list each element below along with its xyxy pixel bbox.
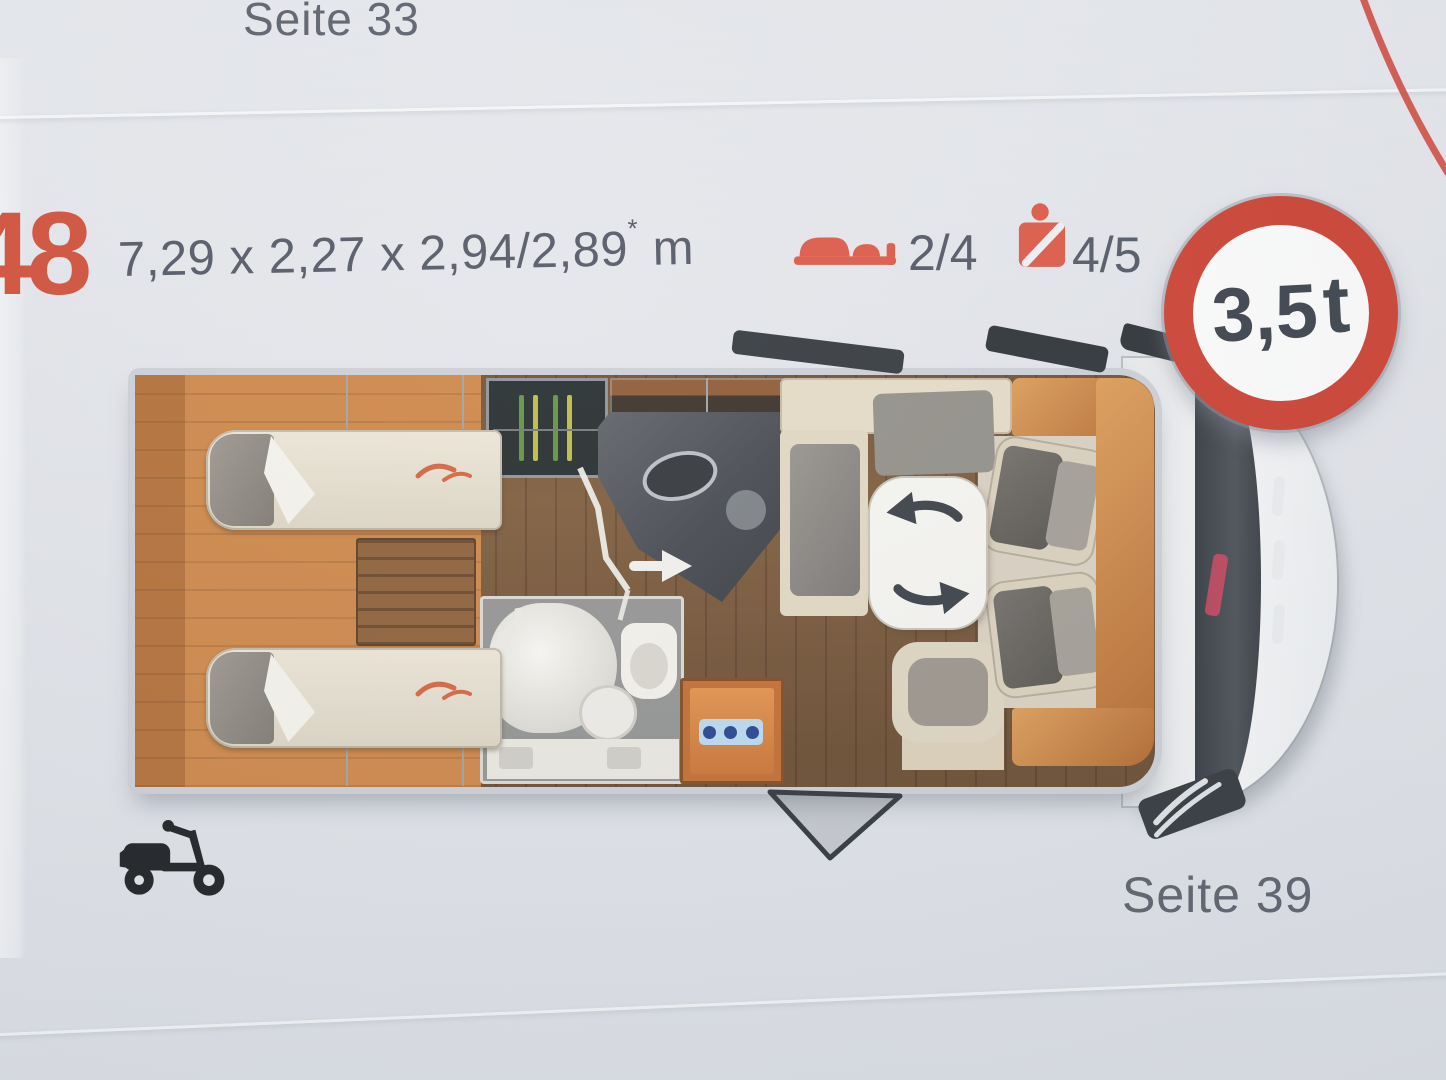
cabinet-divider xyxy=(462,375,464,429)
dinette-cushion-top xyxy=(873,390,996,476)
page-ref-bottom: Seite 39 xyxy=(1122,866,1313,924)
grille-line xyxy=(1272,540,1286,581)
weight-limit-sign: 3,5 t xyxy=(1164,196,1398,430)
single-bed-bottom xyxy=(206,648,502,748)
berths-count: 2/4 xyxy=(908,224,978,282)
pilot-seat-passenger xyxy=(983,569,1111,700)
stove-cabinet xyxy=(680,678,784,784)
wardrobe-stripe xyxy=(553,395,558,461)
wardrobe-stripe xyxy=(567,395,572,461)
kitchen-sink xyxy=(637,444,722,509)
page-fold-bottom xyxy=(0,970,1446,1037)
bed-decor-swoosh xyxy=(414,458,476,486)
swivel-table-arrows-icon xyxy=(870,478,986,628)
single-bed-top xyxy=(206,430,502,530)
seat-pad xyxy=(1049,586,1101,676)
grille-line xyxy=(1272,476,1286,517)
swivel-table xyxy=(870,478,986,628)
toilet xyxy=(621,623,677,699)
vanity-item xyxy=(607,747,641,769)
page-ref-top: Seite 33 xyxy=(243,0,420,46)
wardrobe xyxy=(486,378,608,478)
wardrobe-shelf xyxy=(493,429,599,431)
washbasin xyxy=(579,685,637,741)
model-number: 48 xyxy=(0,186,87,322)
stove-burners xyxy=(699,719,763,745)
dimensions-footnote-mark: * xyxy=(627,213,638,243)
dinette-stool xyxy=(892,642,1004,742)
windshield xyxy=(1195,362,1261,800)
motorhome-floorplan xyxy=(128,350,1368,910)
page-fold-top xyxy=(0,88,1446,120)
scooter-icon xyxy=(112,804,238,902)
grille-line xyxy=(1272,604,1286,645)
toilet-bowl xyxy=(630,643,668,689)
bed-icon xyxy=(792,222,898,270)
dimensions-text: 7,29 x 2,27 x 2,94/2,89*m xyxy=(117,212,694,288)
belted-seat-icon xyxy=(1016,202,1068,272)
dashboard-bottom xyxy=(1012,708,1154,766)
kitchen-sink-cover xyxy=(726,490,766,530)
cabinet-divider xyxy=(346,375,348,429)
vanity-item xyxy=(499,747,533,769)
weight-limit-unit: t xyxy=(1321,258,1352,351)
pilot-seat-driver xyxy=(979,433,1112,569)
bed-decor-swoosh xyxy=(414,676,476,704)
dimensions-unit: m xyxy=(652,221,694,276)
wardrobe-stripe xyxy=(533,395,538,461)
weight-limit-value: 3,5 xyxy=(1210,267,1320,359)
wardrobe-stripe xyxy=(519,395,524,461)
dinette-cushion-side xyxy=(790,444,860,596)
bedroom-steps xyxy=(356,538,476,646)
bathroom-vanity xyxy=(487,739,679,779)
bathroom xyxy=(480,596,684,784)
stool-cushion xyxy=(908,658,988,726)
catalog-page-photo: Seite 33 48 7,29 x 2,27 x 2,94/2,89*m 2/… xyxy=(0,0,1446,1080)
pillow xyxy=(210,652,274,744)
dimensions-value: 7,29 x 2,27 x 2,94/2,89 xyxy=(118,222,629,287)
belted-seats-count: 4/5 xyxy=(1072,226,1142,284)
pillow xyxy=(210,434,274,526)
roof-detail xyxy=(985,325,1110,374)
